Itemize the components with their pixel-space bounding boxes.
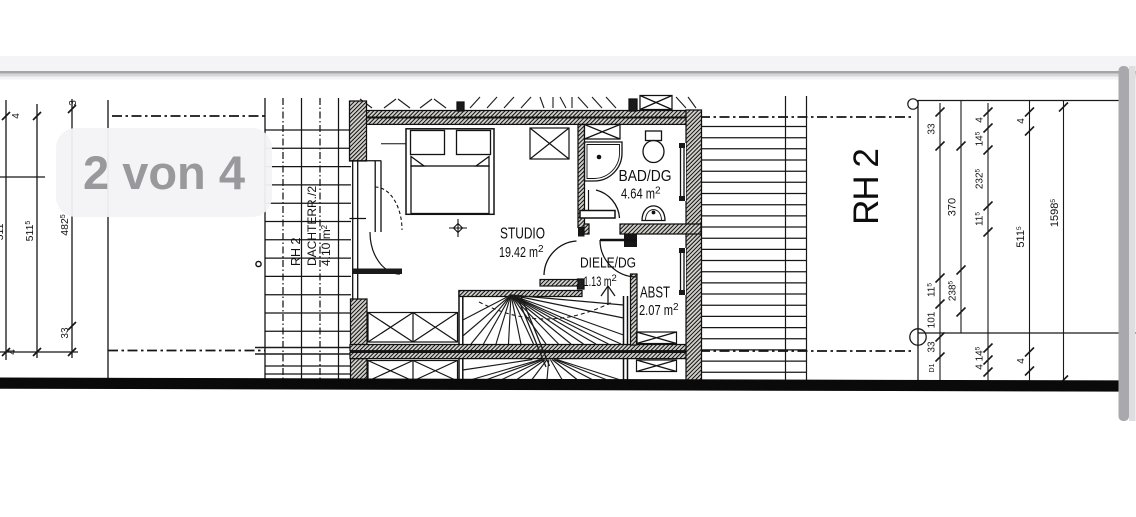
svg-text:4.10 m2: 4.10 m2: [319, 224, 333, 266]
svg-text:101: 101: [927, 311, 938, 328]
svg-text:19.42 m2: 19.42 m2: [499, 244, 544, 261]
svg-text:4: 4: [975, 117, 986, 123]
svg-text:370: 370: [947, 198, 959, 216]
svg-text:DIELE/DG: DIELE/DG: [580, 255, 636, 272]
svg-text:3: 3: [68, 100, 79, 106]
svg-text:33: 33: [927, 341, 938, 353]
svg-text:15985: 15985: [1049, 199, 1061, 227]
svg-text:ABST: ABST: [640, 285, 670, 302]
svg-text:4: 4: [1016, 118, 1027, 124]
svg-text:4: 4: [7, 349, 18, 355]
svg-text:4: 4: [975, 364, 986, 370]
svg-text:33: 33: [927, 123, 938, 135]
svg-text:33: 33: [60, 327, 71, 339]
svg-text:STUDIO: STUDIO: [500, 226, 545, 243]
svg-text:4: 4: [1016, 358, 1027, 364]
svg-text:4: 4: [11, 113, 22, 119]
svg-text:RH 2: RH 2: [289, 237, 303, 266]
svg-text:2 von 4: 2 von 4: [83, 146, 245, 199]
svg-text:D1: D1: [929, 363, 936, 372]
svg-text:RH 2: RH 2: [847, 149, 886, 225]
svg-text:DACHTERR./2: DACHTERR./2: [305, 186, 319, 266]
svg-text:BAD/DG: BAD/DG: [619, 168, 672, 185]
